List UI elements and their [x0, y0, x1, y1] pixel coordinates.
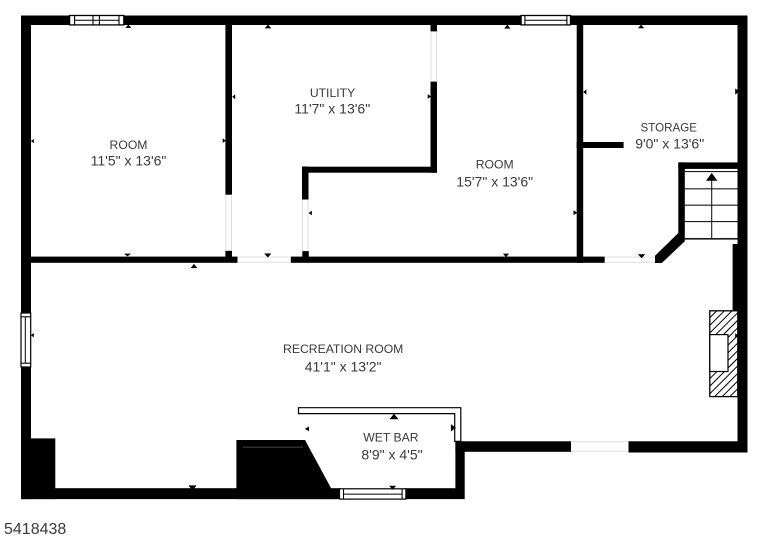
svg-text:WET BAR: WET BAR: [363, 430, 419, 444]
svg-text:STORAGE: STORAGE: [641, 121, 698, 134]
svg-text:11'7" x 13'6": 11'7" x 13'6": [294, 101, 370, 117]
svg-text:11'5" x 13'6": 11'5" x 13'6": [91, 153, 167, 169]
svg-text:15'7" x 13'6": 15'7" x 13'6": [456, 174, 533, 190]
svg-text:8'9" x 4'5": 8'9" x 4'5": [361, 447, 422, 463]
svg-text:9'0" x 13'6": 9'0" x 13'6": [635, 136, 704, 152]
svg-text:UTILITY: UTILITY: [310, 86, 355, 100]
svg-text:41'1" x 13'2": 41'1" x 13'2": [305, 358, 382, 374]
svg-text:ROOM: ROOM: [110, 138, 148, 152]
svg-text:5418438: 5418438: [4, 521, 66, 538]
svg-text:ROOM: ROOM: [476, 158, 514, 172]
svg-text:RECREATION ROOM: RECREATION ROOM: [283, 342, 403, 356]
